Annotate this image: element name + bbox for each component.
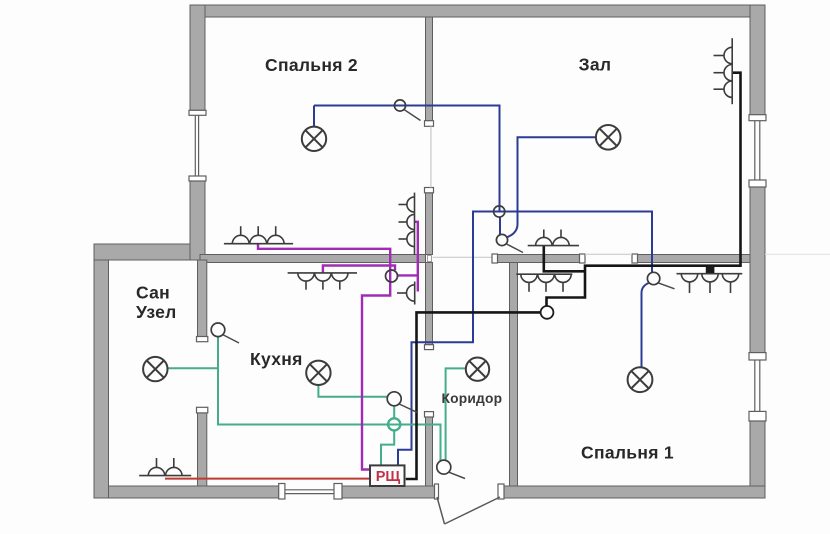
svg-text:Спальня 1: Спальня 1 [581, 443, 674, 463]
svg-text:Сан: Сан [136, 283, 170, 303]
svg-text:Зал: Зал [579, 55, 612, 75]
svg-text:Узел: Узел [136, 302, 177, 322]
svg-text:Коридор: Коридор [442, 391, 503, 406]
svg-text:Спальня 2: Спальня 2 [265, 55, 358, 75]
svg-text:Кухня: Кухня [250, 349, 303, 369]
svg-text:РЩ: РЩ [376, 469, 401, 485]
